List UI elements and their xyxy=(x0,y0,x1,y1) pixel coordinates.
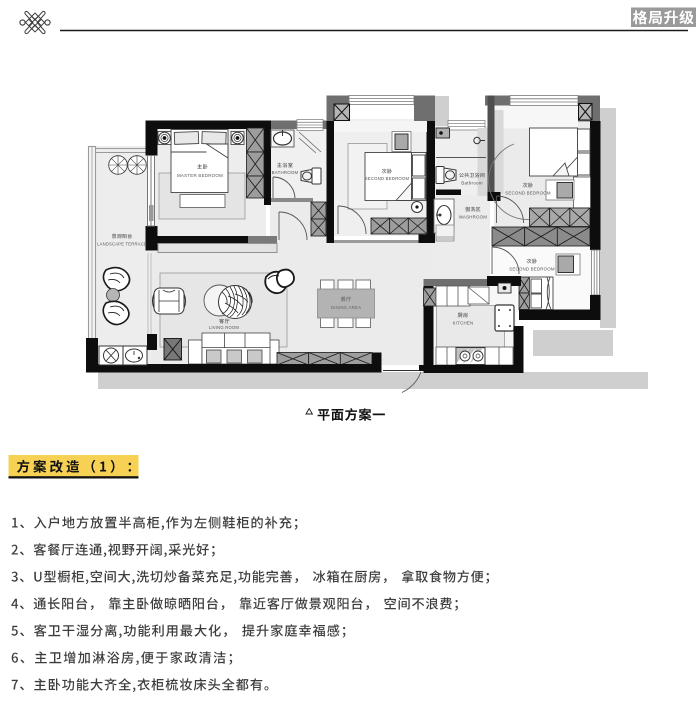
svg-text:WASHROOM: WASHROOM xyxy=(459,215,487,220)
svg-text:BATHROOM: BATHROOM xyxy=(272,170,299,175)
svg-text:LIVING ROOM: LIVING ROOM xyxy=(209,325,239,330)
svg-text:MASTER BEDROOM: MASTER BEDROOM xyxy=(177,173,223,178)
svg-text:KITCHEN: KITCHEN xyxy=(453,321,474,326)
svg-text:SECOND BEDROOM: SECOND BEDROOM xyxy=(365,176,410,181)
svg-text:DINING AREA: DINING AREA xyxy=(331,305,362,310)
svg-text:Bathroom: Bathroom xyxy=(461,181,483,186)
svg-text:LANDSCAPE TERRACE: LANDSCAPE TERRACE xyxy=(97,242,147,247)
svg-text:SECOND BEDROOM: SECOND BEDROOM xyxy=(505,191,551,196)
svg-text:SECOND BEDROOM: SECOND BEDROOM xyxy=(509,267,555,272)
